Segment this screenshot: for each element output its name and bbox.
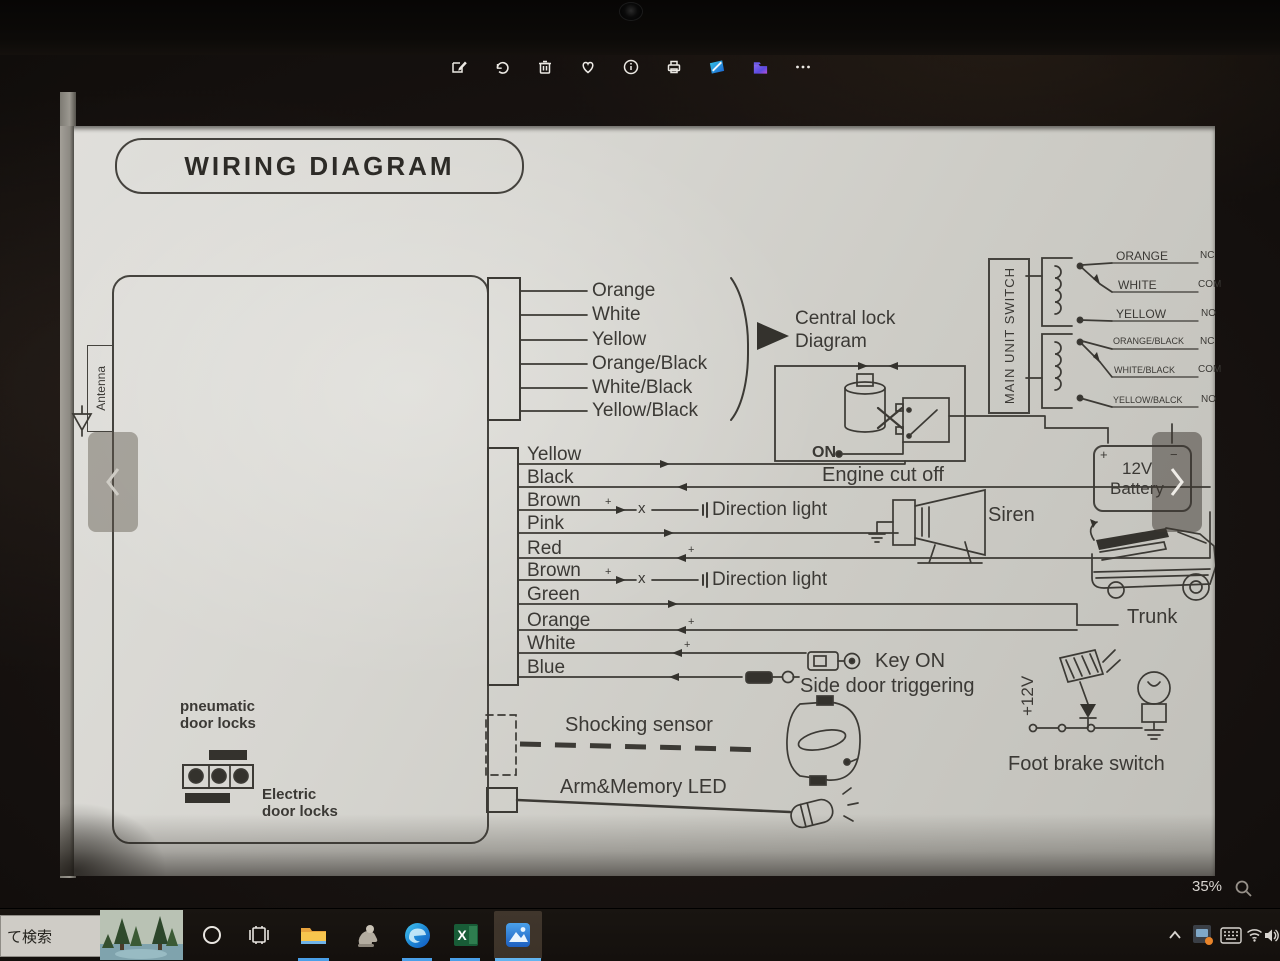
plus-mark: + bbox=[688, 616, 694, 628]
hidden-icons-chevron[interactable] bbox=[1164, 909, 1186, 961]
engine-cut-off-label: Engine cut off bbox=[822, 464, 944, 487]
pneumatic-label: door locks bbox=[180, 715, 256, 732]
terminal-label: NO bbox=[1201, 308, 1216, 319]
wire-label: Yellow bbox=[527, 444, 581, 466]
print-icon[interactable] bbox=[665, 58, 683, 76]
wire-label: White/Black bbox=[592, 377, 692, 399]
taskbar: て検索 bbox=[0, 908, 1280, 961]
side-door-label: Side door triggering bbox=[800, 675, 975, 698]
wire-label: Brown bbox=[527, 490, 581, 512]
previous-image-button[interactable] bbox=[88, 432, 138, 532]
volume-icon[interactable] bbox=[1263, 909, 1280, 961]
excel-icon[interactable]: X bbox=[450, 909, 482, 961]
zoom-level: 35% bbox=[1192, 878, 1222, 895]
central-lock-label: Diagram bbox=[795, 331, 867, 353]
open-with-icon[interactable] bbox=[751, 58, 769, 76]
paper-shadow bbox=[60, 814, 1215, 876]
edit-3d-icon[interactable] bbox=[708, 58, 726, 76]
central-lock-label: Central lock bbox=[795, 308, 895, 330]
wire-label: Pink bbox=[527, 513, 564, 535]
terminal-label: COM bbox=[1198, 279, 1221, 290]
tray-app-icon[interactable] bbox=[1190, 909, 1216, 961]
foot-brake-label: Foot brake switch bbox=[1008, 753, 1165, 776]
switch-wire-label: YELLOW bbox=[1116, 307, 1166, 321]
search-text: て検索 bbox=[1, 926, 52, 947]
terminal-label: NC bbox=[1200, 336, 1214, 347]
arm-memory-led-label: Arm&Memory LED bbox=[560, 776, 727, 799]
wifi-icon[interactable] bbox=[1244, 909, 1264, 961]
task-view-icon[interactable] bbox=[245, 909, 273, 961]
electric-label: Electric bbox=[262, 786, 316, 803]
trunk-label: Trunk bbox=[1127, 606, 1177, 629]
wiring-diagram-image: WIRING DIAGRAM Antenna MAIN UNIT SWITCH … bbox=[60, 126, 1215, 876]
photos-toolbar bbox=[450, 58, 812, 76]
app-icon[interactable] bbox=[351, 909, 381, 961]
plus-mark: + bbox=[684, 639, 690, 651]
plus-mark: + bbox=[688, 544, 694, 556]
wire-label: Green bbox=[527, 584, 580, 606]
break-mark: x bbox=[638, 500, 646, 517]
terminal-label: NC bbox=[1200, 250, 1214, 261]
file-explorer-icon[interactable] bbox=[297, 909, 329, 961]
rotate-icon[interactable] bbox=[493, 58, 511, 76]
direction-light-label: Direction light bbox=[712, 499, 827, 521]
edit-icon[interactable] bbox=[450, 58, 468, 76]
wire-label: White bbox=[592, 304, 641, 326]
svg-text:X: X bbox=[457, 927, 467, 943]
plus-mark: + bbox=[605, 566, 611, 578]
switch-wire-label: YELLOW/BALCK bbox=[1113, 395, 1183, 405]
wire-label: Orange bbox=[592, 280, 655, 302]
plus-12v-label: +12V bbox=[1018, 654, 1038, 716]
taskbar-search[interactable]: て検索 bbox=[0, 915, 102, 957]
terminal-label: NO bbox=[1201, 394, 1216, 405]
cortana-icon[interactable] bbox=[198, 909, 226, 961]
ime-icon[interactable] bbox=[1218, 909, 1244, 961]
switch-wire-label: WHITE/BLACK bbox=[1114, 365, 1175, 375]
info-icon[interactable] bbox=[622, 58, 640, 76]
wire-label: Black bbox=[527, 467, 573, 489]
plus-mark: + bbox=[605, 496, 611, 508]
delete-icon[interactable] bbox=[536, 58, 554, 76]
siren-label: Siren bbox=[988, 504, 1035, 527]
on-label: ON bbox=[812, 444, 836, 462]
wire-label: Blue bbox=[527, 657, 565, 679]
key-on-label: Key ON bbox=[875, 650, 945, 673]
wire-label: Yellow bbox=[592, 329, 646, 351]
direction-light-label: Direction light bbox=[712, 569, 827, 591]
wire-label: Yellow/Black bbox=[592, 400, 698, 422]
switch-wire-label: WHITE bbox=[1118, 278, 1157, 292]
terminal-label: COM bbox=[1198, 364, 1221, 375]
next-image-button[interactable] bbox=[1152, 432, 1202, 532]
zoom-icon[interactable] bbox=[1234, 879, 1253, 903]
switch-wire-label: ORANGE/BLACK bbox=[1113, 336, 1184, 346]
photos-icon[interactable] bbox=[502, 909, 534, 961]
wire-label: Orange bbox=[527, 610, 590, 632]
webcam bbox=[619, 2, 643, 21]
wire-label: White bbox=[527, 633, 576, 655]
wire-label: Brown bbox=[527, 560, 581, 582]
pneumatic-label: pneumatic bbox=[180, 698, 255, 715]
see-more-icon[interactable] bbox=[794, 58, 812, 76]
break-mark: x bbox=[638, 570, 646, 587]
weather-widget[interactable] bbox=[100, 909, 183, 961]
favorite-icon[interactable] bbox=[579, 58, 597, 76]
wire-label: Red bbox=[527, 538, 562, 560]
shocking-sensor-label: Shocking sensor bbox=[565, 714, 713, 737]
edge-icon[interactable] bbox=[401, 909, 433, 961]
wire-label: Orange/Black bbox=[592, 353, 707, 375]
switch-wire-label: ORANGE bbox=[1116, 249, 1168, 263]
